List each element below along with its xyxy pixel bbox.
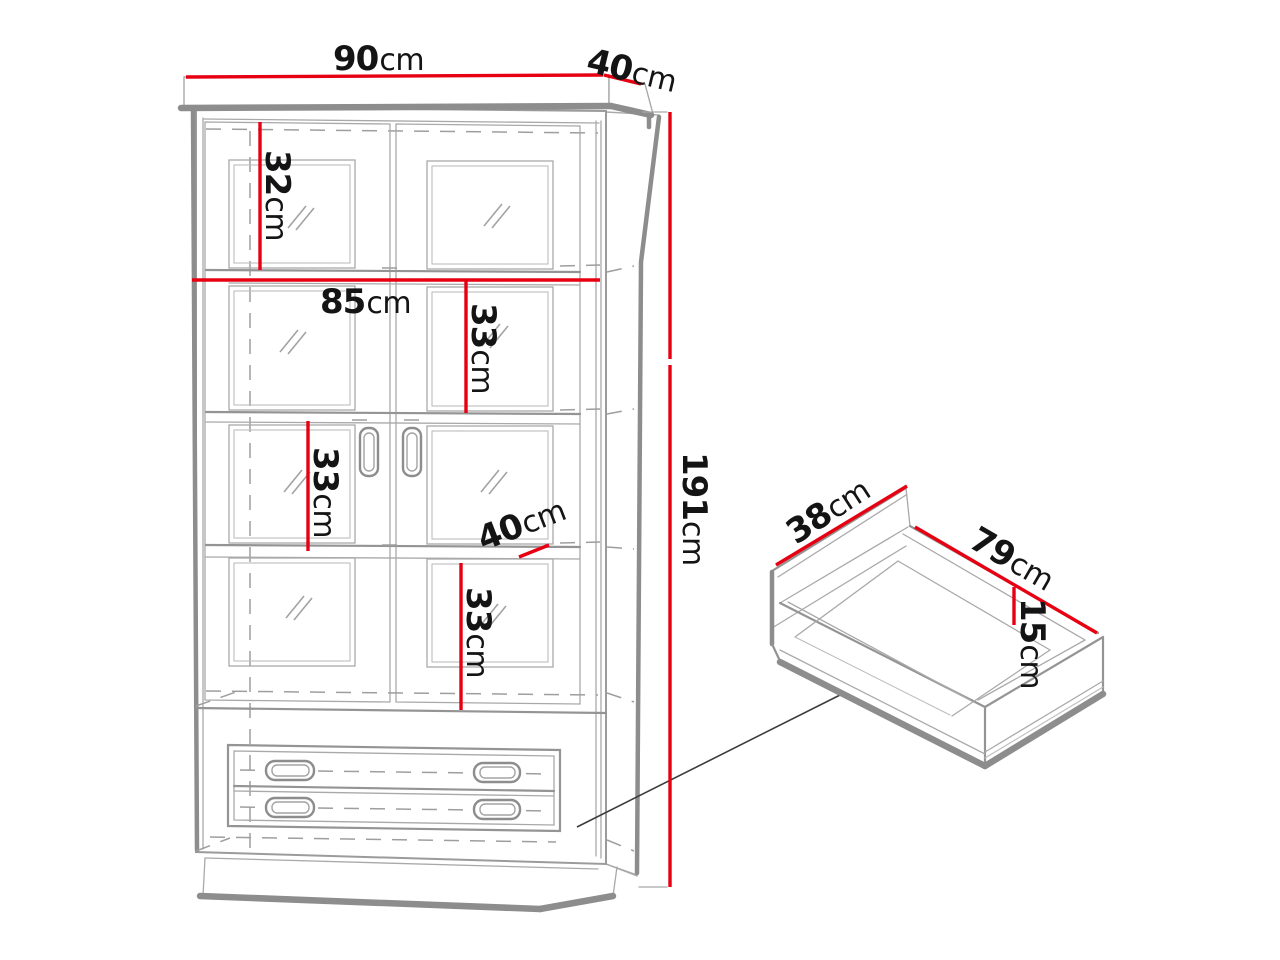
cabinet-front-view xyxy=(181,75,659,909)
drawer-handle xyxy=(266,798,314,817)
dim-label-lower-shelf-spacing: 33cm xyxy=(458,587,498,678)
dim-label-drawer-height: 15cm xyxy=(1012,598,1052,689)
furniture-dimension-diagram: 90cm 40cm 32cm 85cm 33cm 33cm 40cm 33cm … xyxy=(0,0,1280,960)
drawer-handle xyxy=(474,800,520,819)
drawer-handle xyxy=(266,761,314,780)
dim-label-top-section-height: 32cm xyxy=(257,150,297,241)
dim-label-upper-shelf-spacing: 33cm xyxy=(463,303,503,394)
cabinet-side-panel xyxy=(606,112,659,876)
right-door-handle xyxy=(403,428,421,476)
drawer-handle xyxy=(474,763,520,782)
left-door-handle xyxy=(360,428,378,476)
dim-label-middle-shelf-spacing: 33cm xyxy=(305,447,345,538)
dim-label-interior-width: 85cm xyxy=(320,282,411,322)
dim-label-cabinet-width: 90cm xyxy=(333,39,424,79)
dim-label-cabinet-height: 191cm xyxy=(674,452,714,566)
diagram-canvas: 90cm 40cm 32cm 85cm 33cm 33cm 40cm 33cm … xyxy=(0,0,1280,960)
